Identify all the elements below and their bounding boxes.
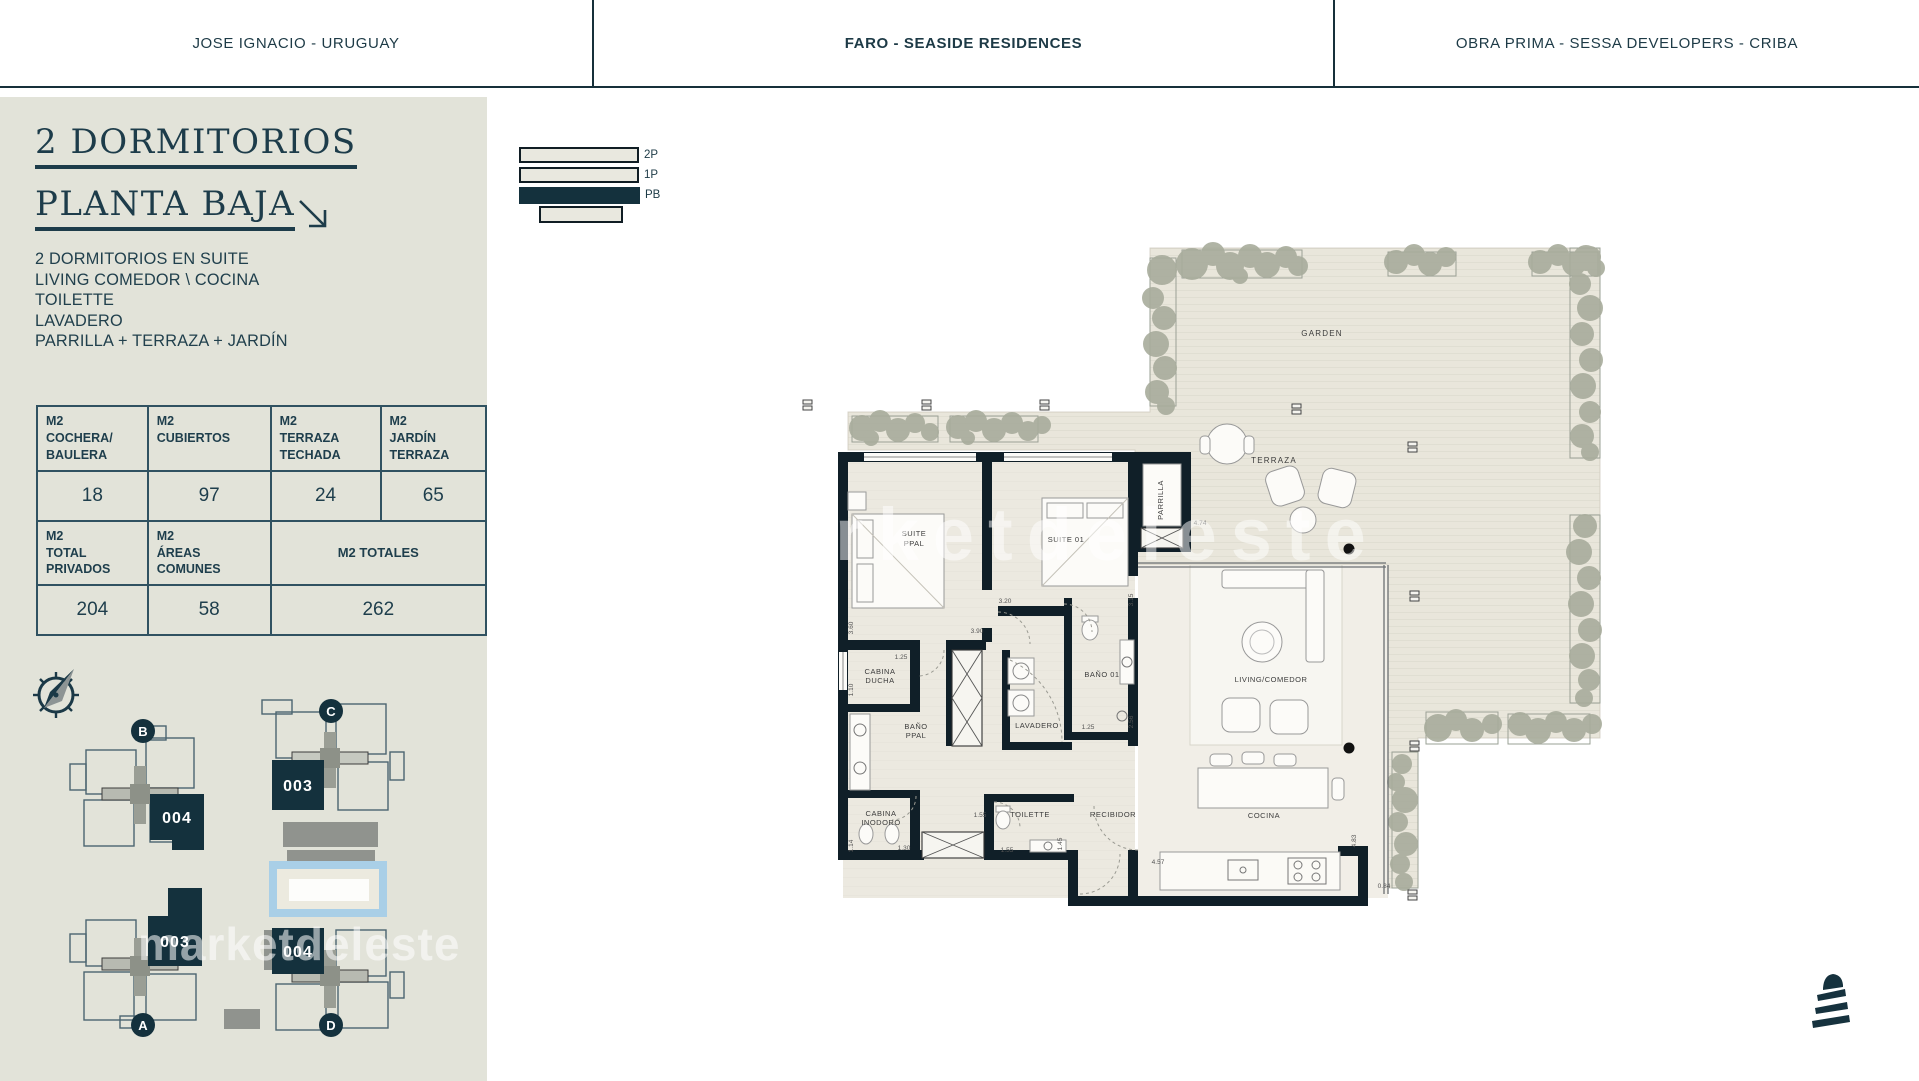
site-amenity-bars bbox=[224, 822, 378, 1029]
unit-number-a: 003 bbox=[160, 934, 190, 951]
column bbox=[1344, 743, 1355, 754]
brochure-page: JOSE IGNACIO - URUGUAY FARO - SEASIDE RE… bbox=[0, 0, 1919, 1081]
svg-text:4.83: 4.83 bbox=[1351, 834, 1358, 847]
svg-text:1.30: 1.30 bbox=[898, 845, 911, 852]
unit-number-d: 004 bbox=[283, 944, 313, 961]
room-label-toilette: TOILETTE bbox=[1010, 810, 1050, 819]
column bbox=[1344, 544, 1355, 555]
site-cluster-a: 003 A bbox=[70, 888, 202, 1037]
room-label-suite-ppal: SUITE bbox=[902, 529, 927, 538]
compass-icon bbox=[33, 669, 79, 718]
unit-number-c: 003 bbox=[283, 778, 313, 795]
unit-number-b: 004 bbox=[162, 810, 192, 827]
svg-text:1.55: 1.55 bbox=[974, 812, 987, 819]
building-letter-a: A bbox=[138, 1018, 148, 1033]
room-label-parrilla: PARRILLA bbox=[1156, 480, 1165, 520]
lighthouse-logo-icon bbox=[1812, 974, 1850, 1028]
site-pool bbox=[273, 865, 383, 913]
room-label-cabina-inodoro: CABINA bbox=[866, 809, 897, 818]
room-label-living: LIVING/COMEDOR bbox=[1235, 675, 1308, 684]
svg-text:PPAL: PPAL bbox=[904, 539, 925, 548]
svg-text:3.20: 3.20 bbox=[999, 598, 1012, 605]
svg-text:2.56: 2.56 bbox=[1128, 715, 1135, 728]
site-cluster-c: 003 C bbox=[262, 699, 404, 810]
room-label-recibidor: RECIBIDOR bbox=[1090, 810, 1136, 819]
site-cluster-d: 004 D bbox=[264, 928, 404, 1037]
svg-text:0.84: 0.84 bbox=[1378, 883, 1391, 890]
svg-text:INODORO: INODORO bbox=[861, 818, 900, 827]
svg-text:1.25: 1.25 bbox=[895, 654, 908, 661]
floor-plan: GARDEN TERRAZA PARRILLA SUITE PPAL SUITE… bbox=[803, 242, 1605, 906]
svg-text:1.25: 1.25 bbox=[1082, 724, 1095, 731]
building-letter-b: B bbox=[138, 724, 147, 739]
svg-text:1.55: 1.55 bbox=[1001, 847, 1014, 854]
room-label-bano-ppal: BAÑO bbox=[904, 722, 927, 731]
building-letter-c: C bbox=[326, 704, 336, 719]
svg-text:3.90: 3.90 bbox=[971, 628, 984, 635]
svg-text:3.15: 3.15 bbox=[1128, 593, 1135, 606]
room-label-cocina: COCINA bbox=[1248, 811, 1280, 820]
room-label-garden: GARDEN bbox=[1301, 329, 1342, 338]
room-label-bano-01: BAÑO 01 bbox=[1084, 670, 1119, 679]
room-label-suite-01: SUITE 01 bbox=[1048, 535, 1085, 544]
building-letter-d: D bbox=[326, 1018, 335, 1033]
site-cluster-b: 004 B bbox=[70, 719, 204, 850]
room-label-terraza: TERRAZA bbox=[1251, 456, 1297, 465]
svg-text:PPAL: PPAL bbox=[906, 731, 927, 740]
svg-text:4.74: 4.74 bbox=[1194, 520, 1207, 527]
svg-text:3.60: 3.60 bbox=[848, 621, 855, 634]
svg-text:4.57: 4.57 bbox=[1152, 859, 1165, 866]
svg-text:1.14: 1.14 bbox=[848, 839, 855, 852]
svg-text:1.45: 1.45 bbox=[1057, 837, 1064, 850]
vector-layer: 004 B 003 C bbox=[0, 0, 1919, 1081]
room-label-cabina-ducha: CABINA bbox=[865, 667, 896, 676]
svg-text:1.10: 1.10 bbox=[848, 683, 855, 696]
room-label-lavadero: LAVADERO bbox=[1015, 721, 1059, 730]
svg-text:DUCHA: DUCHA bbox=[865, 676, 894, 685]
